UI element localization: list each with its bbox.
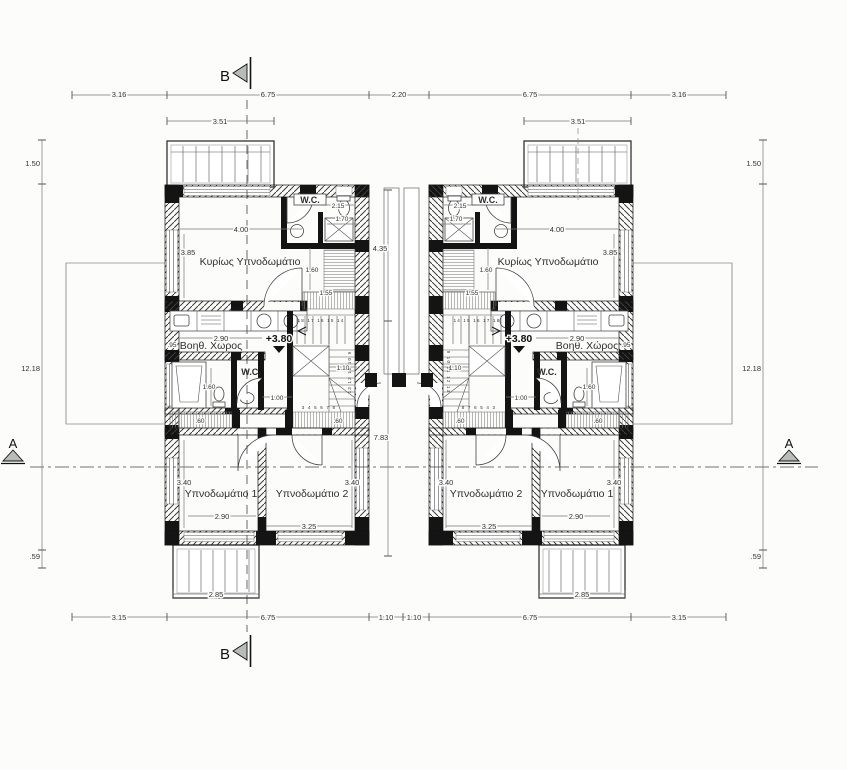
dim-bottom-6: 3.15 bbox=[672, 613, 687, 622]
stair-numbers-left-top: 18 17 16 15 14 bbox=[298, 318, 345, 323]
section-marker-b-bottom: B bbox=[220, 635, 251, 667]
dim-stair-v-left: 1.60 bbox=[306, 267, 319, 274]
stair-numbers-left-side: 13 12 11 10 9 bbox=[347, 351, 352, 394]
dim-top-3: 2.20 bbox=[392, 90, 407, 99]
dim-right-3: .59 bbox=[751, 552, 761, 561]
room-label-wc-mid-left: W.C. bbox=[241, 367, 261, 377]
dim-stair-v-right: 1.60 bbox=[480, 267, 493, 274]
dim-aux-h-left: .95 bbox=[167, 342, 176, 349]
room-label-master-left: Κυρίως Υπνοδωμάτιο bbox=[200, 256, 301, 268]
terrace-outline-left bbox=[66, 263, 165, 424]
lightwell bbox=[365, 188, 433, 387]
dimension-lines bbox=[38, 91, 767, 621]
dim-top-4: 6.75 bbox=[523, 90, 538, 99]
section-marker-a-right: A bbox=[777, 436, 801, 464]
dim-bed2-w-right: 3.25 bbox=[482, 522, 497, 531]
level-label-right: +3.80 bbox=[506, 333, 533, 345]
dim-wc-w-right: 2.15 bbox=[454, 203, 467, 210]
room-label-wc-mid-right: W.C. bbox=[537, 367, 557, 377]
dim-bed1-w-left: 2.90 bbox=[215, 512, 230, 521]
floor-plan-sheet: B B A A +3.80 +3.80 bbox=[0, 0, 847, 770]
dim-ledge-left-1: .60 bbox=[195, 418, 204, 425]
dim-kitchen-w-right: 2.90 bbox=[570, 334, 585, 343]
dim-stair-h-left: 1.55 bbox=[320, 290, 333, 297]
section-marker-a-left: A bbox=[1, 436, 25, 464]
dim-ledge-left-2: .60 bbox=[333, 418, 342, 425]
dim-stair-h-right: 1.55 bbox=[466, 290, 479, 297]
dim-shower-w-right: 1.70 bbox=[450, 216, 463, 223]
dim-mid-upper: 4.35 bbox=[373, 244, 388, 253]
dim-left-2: 12.18 bbox=[21, 364, 40, 373]
dim-bottom-5: 6.75 bbox=[523, 613, 538, 622]
dim-hall-w-left: 1.00 bbox=[271, 395, 284, 402]
dim-bed2-w-left: 3.25 bbox=[302, 522, 317, 531]
dim-right-1: 1.50 bbox=[746, 159, 761, 168]
room-label-aux-left: Βοηθ. Χώρος bbox=[180, 340, 242, 352]
room-label-wc-top-right: W.C. bbox=[478, 195, 498, 205]
room-label-bed1-right: Υπνοδωμάτιο 1 bbox=[541, 488, 614, 500]
dim-shower-w-left: 1.70 bbox=[336, 216, 349, 223]
section-label-b-bottom: B bbox=[220, 646, 230, 663]
dim-balcony-top-left: 3.51 bbox=[213, 117, 228, 126]
stair-numbers-left-bottom: 3 4 5 6 7 8 bbox=[302, 405, 336, 410]
dim-bed-h-left-2: 3.40 bbox=[345, 478, 360, 487]
room-label-master-right: Κυρίως Υπνοδωμάτιο bbox=[498, 256, 599, 268]
dim-mid-lower: 7.83 bbox=[374, 433, 389, 442]
dim-bottom-2: 6.75 bbox=[261, 613, 276, 622]
dim-ledge-right-2: .60 bbox=[593, 418, 602, 425]
dim-room-h-left: 3.85 bbox=[181, 248, 196, 257]
dim-top-1: 3.16 bbox=[112, 90, 127, 99]
dim-room-w-left: 4.00 bbox=[234, 225, 249, 234]
dim-bed1-w-right: 2.90 bbox=[569, 512, 584, 521]
dim-balcony-bottom-right: 2.85 bbox=[575, 590, 590, 599]
dim-bath-h-left: 1.60 bbox=[203, 384, 216, 391]
dim-room-h-right: 3.85 bbox=[603, 248, 618, 257]
stair-numbers-right-side: 9 10 11 12 13 bbox=[446, 351, 451, 394]
section-label-a-left: A bbox=[9, 436, 18, 451]
section-marker-b-top: B bbox=[220, 57, 251, 89]
dim-balcony-bottom-left: 2.85 bbox=[209, 590, 224, 599]
dim-top-2: 6.75 bbox=[261, 90, 276, 99]
dim-left-3: .59 bbox=[30, 552, 40, 561]
floor-plan-drawing: B B A A +3.80 +3.80 bbox=[0, 0, 847, 770]
dim-balcony-top-right: 3.51 bbox=[571, 117, 586, 126]
section-label-b-top: B bbox=[220, 68, 230, 85]
room-label-bed1-left: Υπνοδωμάτιο 1 bbox=[185, 488, 258, 500]
room-label-bed2-left: Υπνοδωμάτιο 2 bbox=[276, 488, 349, 500]
dim-aux-h-right: .95 bbox=[621, 342, 630, 349]
dim-bed-h-right-2: 3.40 bbox=[607, 478, 622, 487]
stair-numbers-right-top: 14 15 16 17 18 bbox=[454, 318, 501, 323]
section-label-a-right: A bbox=[785, 436, 794, 451]
dim-right-2: 12.18 bbox=[742, 364, 761, 373]
dim-bottom-3: 1.10 bbox=[379, 613, 394, 622]
stair-numbers-right-bottom: 8 7 6 5 4 3 bbox=[462, 405, 496, 410]
dim-room-w-right: 4.00 bbox=[550, 225, 565, 234]
level-label-left: +3.80 bbox=[266, 333, 293, 345]
dim-hall-w-right: 1.00 bbox=[515, 395, 528, 402]
dim-bath-h-right: 1.60 bbox=[583, 384, 596, 391]
dim-left-1: 1.50 bbox=[25, 159, 40, 168]
room-label-aux-right: Βοηθ. Χώρος bbox=[556, 340, 618, 352]
room-label-bed2-right: Υπνοδωμάτιο 2 bbox=[450, 488, 523, 500]
terrace-outline-right bbox=[633, 263, 732, 424]
dim-bottom-4: 1.10 bbox=[407, 613, 422, 622]
dim-top-5: 3.16 bbox=[672, 90, 687, 99]
room-label-wc-top-left: W.C. bbox=[300, 195, 320, 205]
dim-bed-h-left-1: 3.40 bbox=[177, 478, 192, 487]
dim-bottom-1: 3.15 bbox=[112, 613, 127, 622]
dim-wc-w-left: 2.15 bbox=[332, 203, 345, 210]
dim-kitchen-w-left: 2.90 bbox=[214, 334, 229, 343]
dim-bed-h-right-1: 3.40 bbox=[439, 478, 454, 487]
dim-ledge-right-1: .60 bbox=[455, 418, 464, 425]
